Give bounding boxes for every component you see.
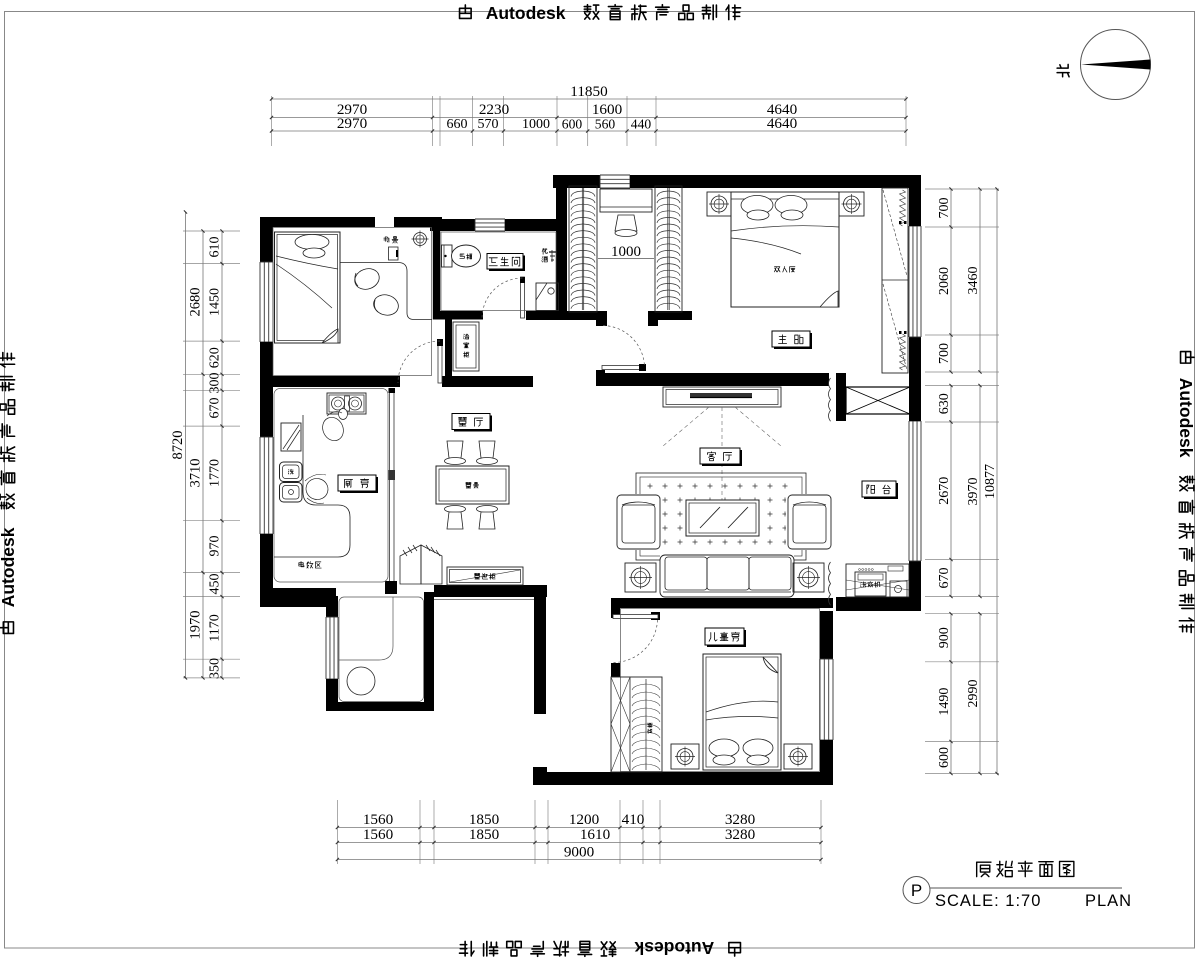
svg-text:8720: 8720 [170,431,186,460]
svg-text:450: 450 [208,574,223,595]
svg-text:3970: 3970 [966,478,981,506]
svg-text:900: 900 [937,627,952,648]
svg-text:410: 410 [622,811,645,828]
svg-text:1560: 1560 [363,826,394,843]
svg-text:670: 670 [937,568,952,589]
svg-text:Autodesk: Autodesk [486,3,566,23]
svg-text:2990: 2990 [966,680,981,708]
svg-text:2970: 2970 [337,115,368,132]
svg-text:P: P [911,881,922,900]
svg-text:Autodesk: Autodesk [0,527,18,607]
svg-text:Autodesk: Autodesk [634,938,714,958]
svg-text:660: 660 [447,117,468,132]
svg-text:620: 620 [208,347,223,368]
svg-text:3710: 3710 [188,459,204,488]
svg-text:440: 440 [631,117,652,132]
svg-text:300: 300 [208,373,223,394]
svg-text:1600: 1600 [592,101,623,118]
svg-text:1770: 1770 [208,459,223,487]
svg-text:570: 570 [478,117,499,132]
svg-text:1170: 1170 [208,614,223,641]
svg-text:630: 630 [937,393,952,414]
svg-text:2230: 2230 [479,101,510,118]
svg-text:4640: 4640 [767,115,798,132]
svg-text:2060: 2060 [937,267,952,295]
svg-text:700: 700 [937,343,952,364]
svg-text:700: 700 [937,198,952,219]
svg-text:970: 970 [208,536,223,557]
svg-text:11850: 11850 [570,83,608,100]
svg-text:2670: 2670 [937,477,952,505]
svg-text:1850: 1850 [469,826,500,843]
svg-text:1490: 1490 [937,688,952,716]
svg-text:1000: 1000 [522,117,550,132]
svg-text:9000: 9000 [564,844,595,861]
svg-text:350: 350 [208,658,223,679]
svg-text:1970: 1970 [188,611,204,640]
svg-text:PLAN: PLAN [1085,892,1132,910]
svg-text:2680: 2680 [188,288,204,317]
svg-text:1610: 1610 [580,826,611,843]
svg-text:10877: 10877 [983,464,998,499]
svg-text:1450: 1450 [208,288,223,316]
svg-text:1000: 1000 [611,244,641,260]
svg-text:600: 600 [937,747,952,768]
svg-text:670: 670 [208,398,223,419]
svg-text:3460: 3460 [966,267,981,295]
svg-text:610: 610 [208,237,223,258]
svg-text:3280: 3280 [725,826,756,843]
svg-text:560: 560 [595,117,616,132]
svg-text:600: 600 [562,117,583,132]
svg-text:SCALE: 1:70: SCALE: 1:70 [935,892,1041,910]
svg-text:Autodesk: Autodesk [1176,378,1196,458]
